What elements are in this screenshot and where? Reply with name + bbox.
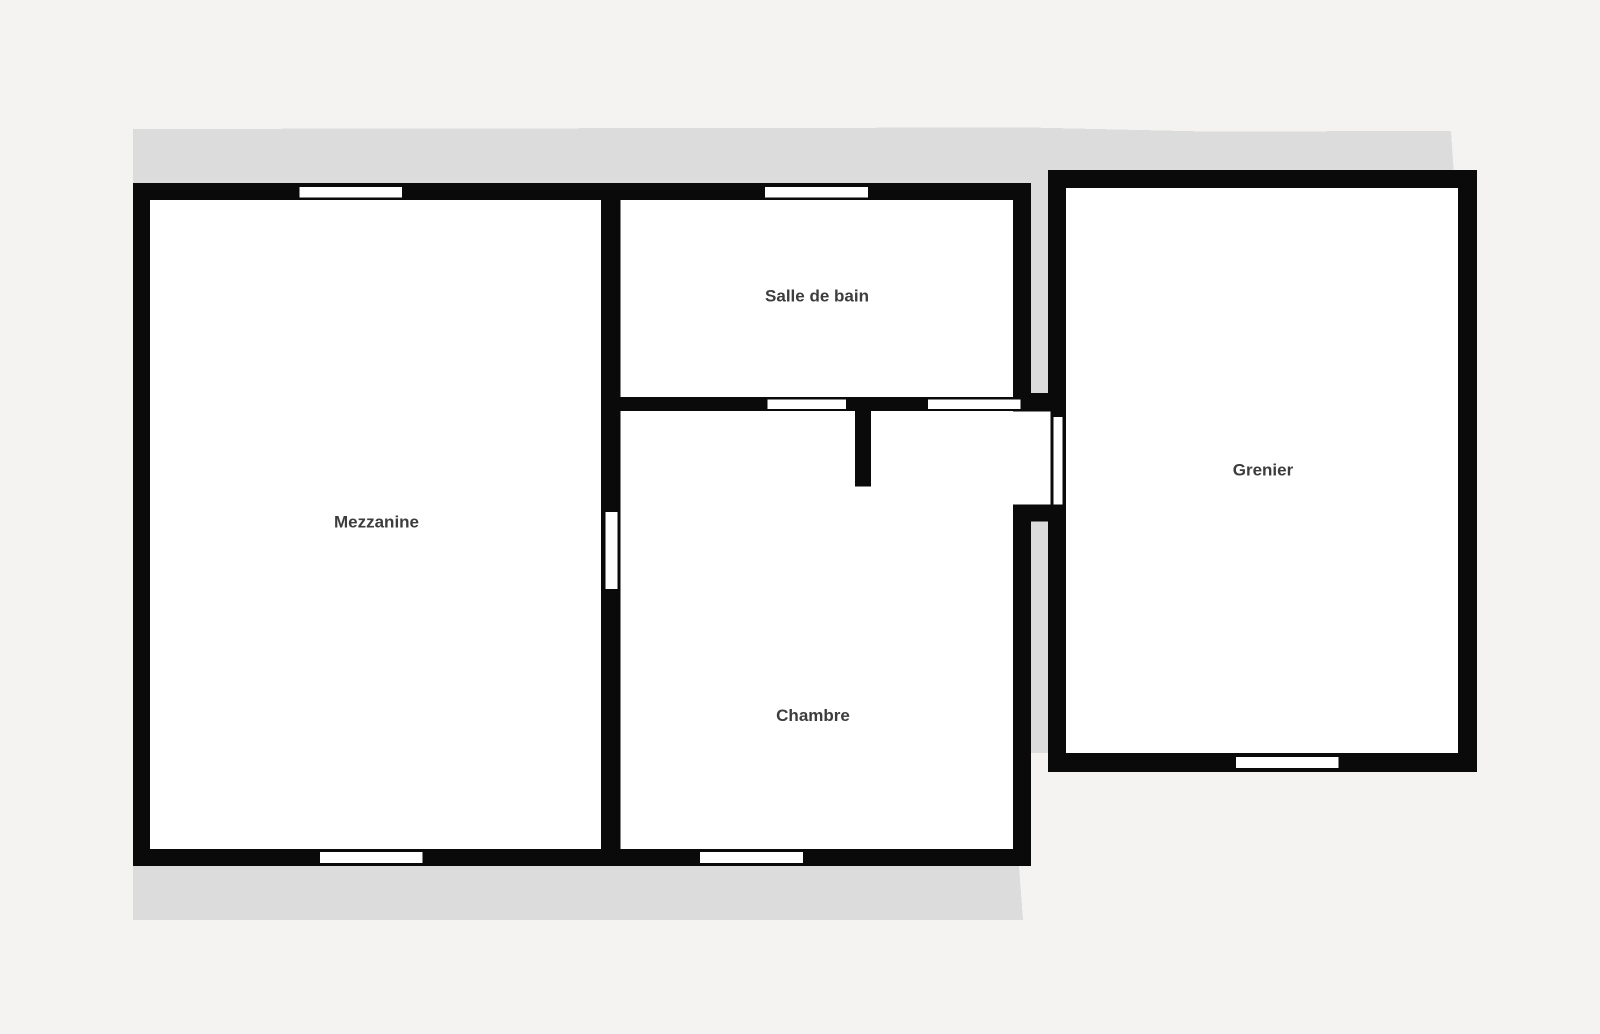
- svg-text:Salle de bain: Salle de bain: [765, 287, 869, 306]
- svg-text:Chambre: Chambre: [776, 706, 850, 725]
- svg-text:Grenier: Grenier: [1233, 461, 1294, 480]
- svg-text:Mezzanine: Mezzanine: [334, 513, 419, 532]
